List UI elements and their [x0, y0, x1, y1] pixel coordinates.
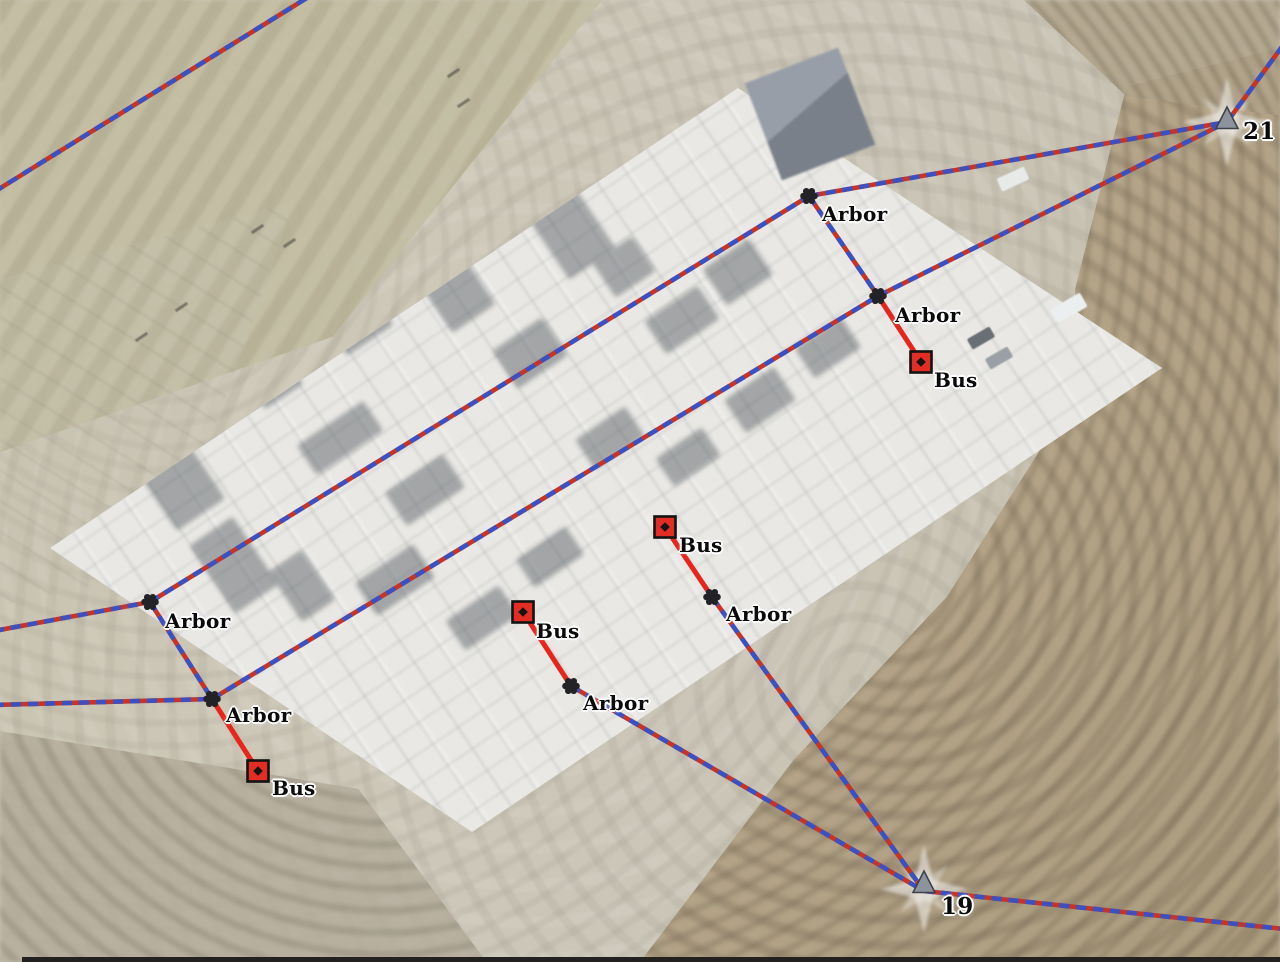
- transmission-line-arbor4-west[interactable]: [0, 699, 212, 705]
- transmission-line-arbor2-21[interactable]: [878, 122, 1227, 296]
- imagery-edge-strip: [22, 957, 1280, 962]
- arbor-label: Arbor: [583, 691, 648, 715]
- bus-label: Bus: [679, 533, 723, 557]
- arbor-label: Arbor: [822, 202, 887, 226]
- transmission-line-21-offmap[interactable]: [1227, 44, 1280, 122]
- transmission-line-arbor3-west[interactable]: [0, 602, 150, 631]
- arbor-label: Arbor: [165, 609, 230, 633]
- bus-marker[interactable]: [911, 352, 932, 373]
- transmission-line-19-east[interactable]: [924, 891, 1280, 929]
- transmission-line-arbor6-19[interactable]: [712, 597, 924, 891]
- arbor-label: Arbor: [895, 303, 960, 327]
- bus-label: Bus: [536, 619, 580, 643]
- bus-marker[interactable]: [248, 761, 269, 782]
- arbor-label: Arbor: [726, 602, 791, 626]
- bus-label: Bus: [934, 368, 978, 392]
- bus-marker[interactable]: [513, 602, 534, 623]
- transmission-line-corner[interactable]: [0, 0, 310, 192]
- transmission-line-arbor1-21[interactable]: [809, 122, 1227, 196]
- map-viewport[interactable]: Arbor Arbor Arbor Arbor Arbor Arbor Bus …: [0, 0, 1280, 962]
- junction-label: 19: [941, 893, 974, 920]
- bus-label: Bus: [272, 776, 316, 800]
- junction-label: 21: [1243, 118, 1276, 145]
- transmission-line-arbor5-19[interactable]: [571, 686, 924, 891]
- arbor-label: Arbor: [226, 703, 291, 727]
- bus-marker[interactable]: [655, 517, 676, 538]
- network-overlay-layer: [0, 0, 1280, 962]
